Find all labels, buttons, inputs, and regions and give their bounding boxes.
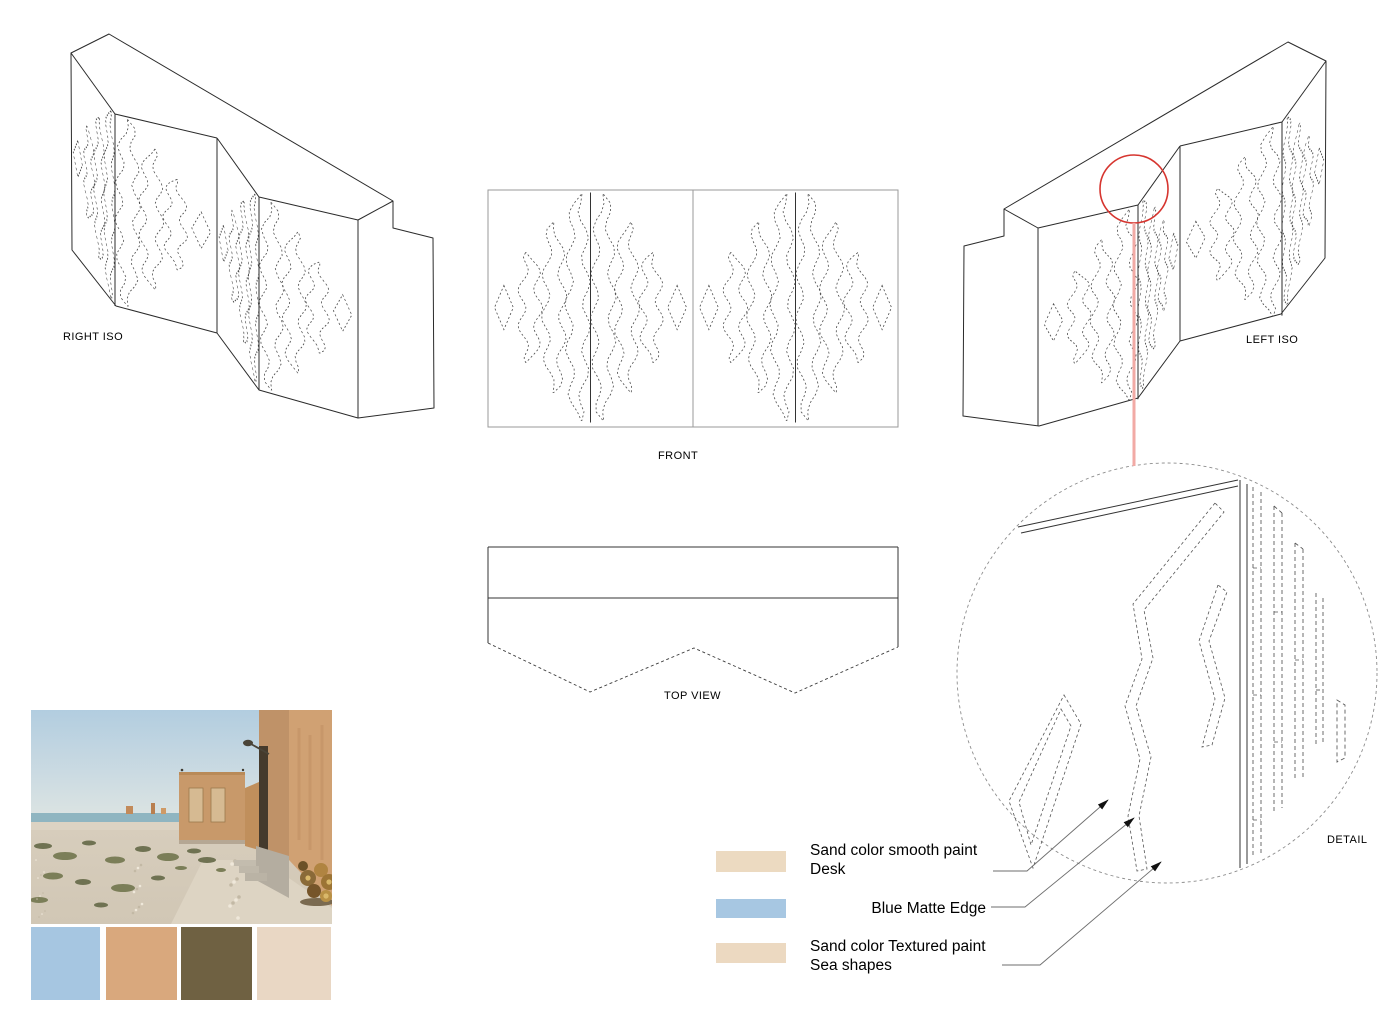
right-iso-label: RIGHT ISO bbox=[63, 331, 123, 343]
legend-swatch-desk bbox=[716, 851, 786, 872]
reference-photo bbox=[31, 710, 332, 924]
detail-label: DETAIL bbox=[1327, 834, 1367, 846]
legend-label-sea-shapes: Sand color Textured paint Sea shapes bbox=[810, 937, 986, 975]
palette-swatch-tan bbox=[106, 927, 177, 1000]
front-label: FRONT bbox=[658, 450, 698, 462]
legend-swatch-sea-shapes bbox=[716, 943, 786, 963]
palette-swatch-cream bbox=[257, 927, 331, 1000]
top-view-label: TOP VIEW bbox=[664, 690, 721, 702]
palette-swatch-olive bbox=[181, 927, 252, 1000]
design-board: RIGHT ISO FRONT TOP VIEW LEFT ISO DETAIL… bbox=[0, 0, 1390, 1020]
reference-photo-image bbox=[31, 710, 332, 924]
legend-label-edge: Blue Matte Edge bbox=[810, 899, 986, 918]
left-iso-label: LEFT ISO bbox=[1246, 334, 1298, 346]
legend-swatch-edge bbox=[716, 899, 786, 918]
palette-swatch-blue bbox=[31, 927, 100, 1000]
legend-label-desk: Sand color smooth paint Desk bbox=[810, 841, 977, 879]
